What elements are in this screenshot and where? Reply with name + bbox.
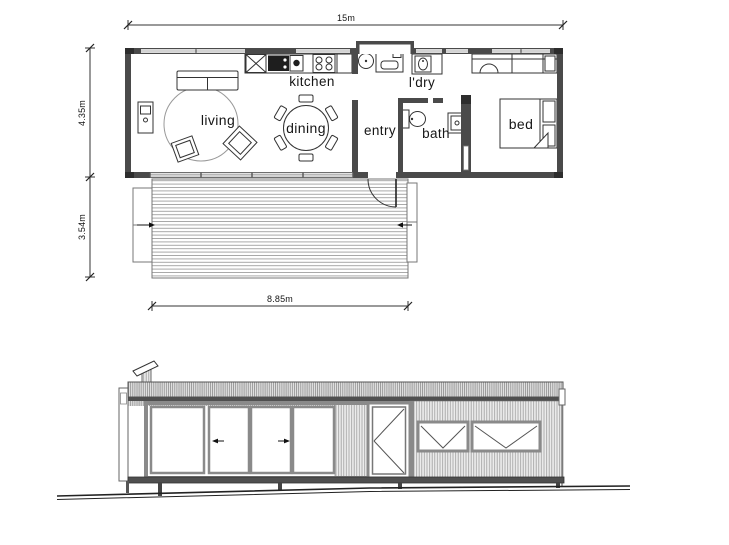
dimension-deck-width: 8.85m — [148, 294, 412, 311]
room-label-bed: bed — [509, 116, 534, 132]
room-label-kitchen: kitchen — [289, 74, 335, 89]
room-label-bath: bath — [422, 126, 450, 141]
slider-panel-4 — [293, 407, 334, 473]
sliding-door-plan — [150, 173, 353, 177]
wall-bath-top-1 — [398, 98, 428, 103]
awning-window-1 — [418, 422, 468, 451]
dimension-width-label: 15m — [337, 13, 355, 23]
wall-bath-left — [398, 98, 403, 172]
wall-kitchen-laundry — [352, 48, 358, 74]
drawing-svg: 15m 4.35m 3.54m — [0, 0, 729, 545]
entry-door-elevation — [368, 403, 410, 478]
architectural-drawing: 15m 4.35m 3.54m — [0, 0, 729, 545]
window-hall — [416, 49, 442, 53]
ground-line — [57, 486, 630, 500]
laundry-sink-bench — [412, 54, 442, 74]
deck-step-left — [133, 188, 155, 262]
head-flashing — [128, 397, 563, 401]
deck-boards — [152, 179, 408, 278]
window-bed-2 — [492, 49, 550, 53]
clad-between — [335, 403, 368, 478]
fascia-band — [128, 382, 563, 397]
floor-band — [128, 477, 564, 483]
kitchen-bench — [245, 54, 352, 73]
window-bed-1 — [446, 49, 468, 53]
kitchen-sink — [290, 56, 303, 72]
elevation — [57, 361, 630, 500]
dimension-house-depth-label: 4.35m — [77, 100, 87, 126]
laundry-bay-wall — [356, 41, 414, 45]
window-kitchen — [296, 49, 350, 53]
dimension-deck-width-label: 8.85m — [267, 294, 293, 304]
wall-bath-top-2 — [433, 98, 443, 103]
dimension-house-depth: 4.35m — [77, 44, 95, 177]
chimney-flue — [133, 361, 158, 383]
wall-dining-entry — [352, 100, 358, 172]
oven — [268, 56, 289, 72]
elevation-left-panel — [119, 388, 128, 481]
sofa — [177, 71, 238, 90]
room-label-laundry: l'dry — [409, 75, 435, 90]
pantry — [246, 55, 266, 73]
wall-niche — [464, 146, 469, 170]
room-label-living: living — [201, 112, 235, 128]
cooktop — [313, 55, 335, 73]
room-label-dining: dining — [286, 120, 326, 136]
awning-window-2 — [472, 422, 540, 451]
window-living — [141, 49, 245, 53]
deck — [133, 179, 417, 278]
wardrobe — [472, 54, 557, 73]
entry-opening — [368, 172, 396, 178]
dimension-deck-depth-label: 3.54m — [77, 214, 87, 240]
dimension-overall-width: 15m — [124, 13, 567, 30]
floor-plan: 15m 4.35m 3.54m — [77, 13, 567, 311]
tv-unit — [138, 102, 153, 133]
room-label-entry: entry — [364, 123, 396, 138]
slider-panel-1 — [151, 407, 204, 473]
dimension-deck-depth: 3.54m — [77, 173, 95, 281]
